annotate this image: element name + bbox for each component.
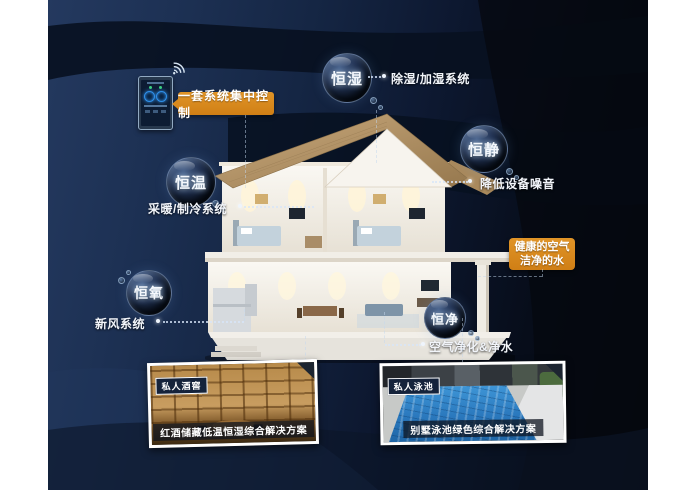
connector-line [376, 110, 377, 163]
connector-line [245, 115, 246, 188]
bubble-satellite [506, 168, 513, 175]
connector-line [244, 309, 245, 321]
smart-control-phone [138, 76, 173, 130]
connector-line [305, 336, 306, 361]
phone-screen [141, 80, 170, 126]
dial-knob-icon [156, 91, 167, 102]
poster-root: { "control": { "label": "一套系统集中控制" }, "h… [0, 0, 700, 497]
clean-water-label: 洁净的水 [520, 254, 564, 268]
label-noise-reduction: 降低设备噪音 [480, 175, 555, 192]
bubble-label: 恒湿 [331, 68, 363, 89]
bubble-satellite [126, 270, 131, 275]
bubble-constant-quiet: 恒静 [460, 125, 508, 173]
connector-node [382, 74, 386, 78]
pool-card-badge: 私人泳池 [388, 377, 440, 395]
bubble-label: 恒温 [175, 172, 207, 193]
connector-line [542, 269, 543, 277]
connector-node [238, 204, 242, 208]
wine-card-badge: 私人酒窖 [155, 377, 207, 395]
bubble-satellite [370, 97, 377, 104]
connector-node [421, 342, 425, 346]
central-control-label: 一套系统集中控制 [178, 87, 274, 121]
bubble-constant-purity: 恒净 [424, 297, 466, 339]
healthy-air-label: 健康的空气 [515, 240, 570, 254]
bubble-label: 恒静 [468, 139, 500, 160]
label-dehumidify-system: 除湿/加湿系统 [391, 70, 470, 87]
connector-line [384, 312, 385, 343]
connector-line [432, 181, 468, 183]
connector-line [368, 76, 381, 78]
connector-line [163, 321, 244, 323]
corner-ribbon [545, 364, 562, 381]
pool-card: 私人泳池 别墅泳池绿色综合解决方案 [379, 361, 566, 446]
central-control-callout: 一套系统集中控制 [178, 92, 274, 115]
diagram-canvas: 一套系统集中控制 恒湿 除湿/加湿系统 恒静 降低设备噪音 恒温 采暖/制冷系统… [48, 0, 648, 490]
wine-cellar-card: 私人酒窖 红酒储藏低温恒湿综合解决方案 [147, 359, 319, 448]
connector-line [244, 206, 314, 208]
label-fresh-air-system: 新风系统 [95, 315, 145, 332]
connector-node [468, 179, 472, 183]
bubble-label: 恒净 [431, 309, 459, 328]
bubble-satellite [468, 330, 474, 336]
connector-line [478, 276, 542, 277]
bubble-satellite [118, 277, 125, 284]
bubble-satellite [378, 105, 383, 110]
dial-knob-icon [144, 91, 155, 102]
connector-line [385, 344, 421, 346]
label-heating-cooling: 采暖/制冷系统 [148, 200, 227, 217]
corner-ribbon [297, 362, 314, 379]
bubble-constant-oxygen: 恒氧 [126, 270, 172, 316]
healthy-air-water-callout: 健康的空气 洁净的水 [509, 238, 575, 270]
bubble-constant-humidity: 恒湿 [322, 53, 372, 103]
pool-card-caption: 别墅泳池绿色综合解决方案 [403, 419, 543, 438]
label-air-water-purification: 空气净化&净水 [429, 338, 513, 355]
connector-node [156, 319, 160, 323]
bubble-label: 恒氧 [134, 283, 164, 303]
connector-line [462, 318, 463, 362]
